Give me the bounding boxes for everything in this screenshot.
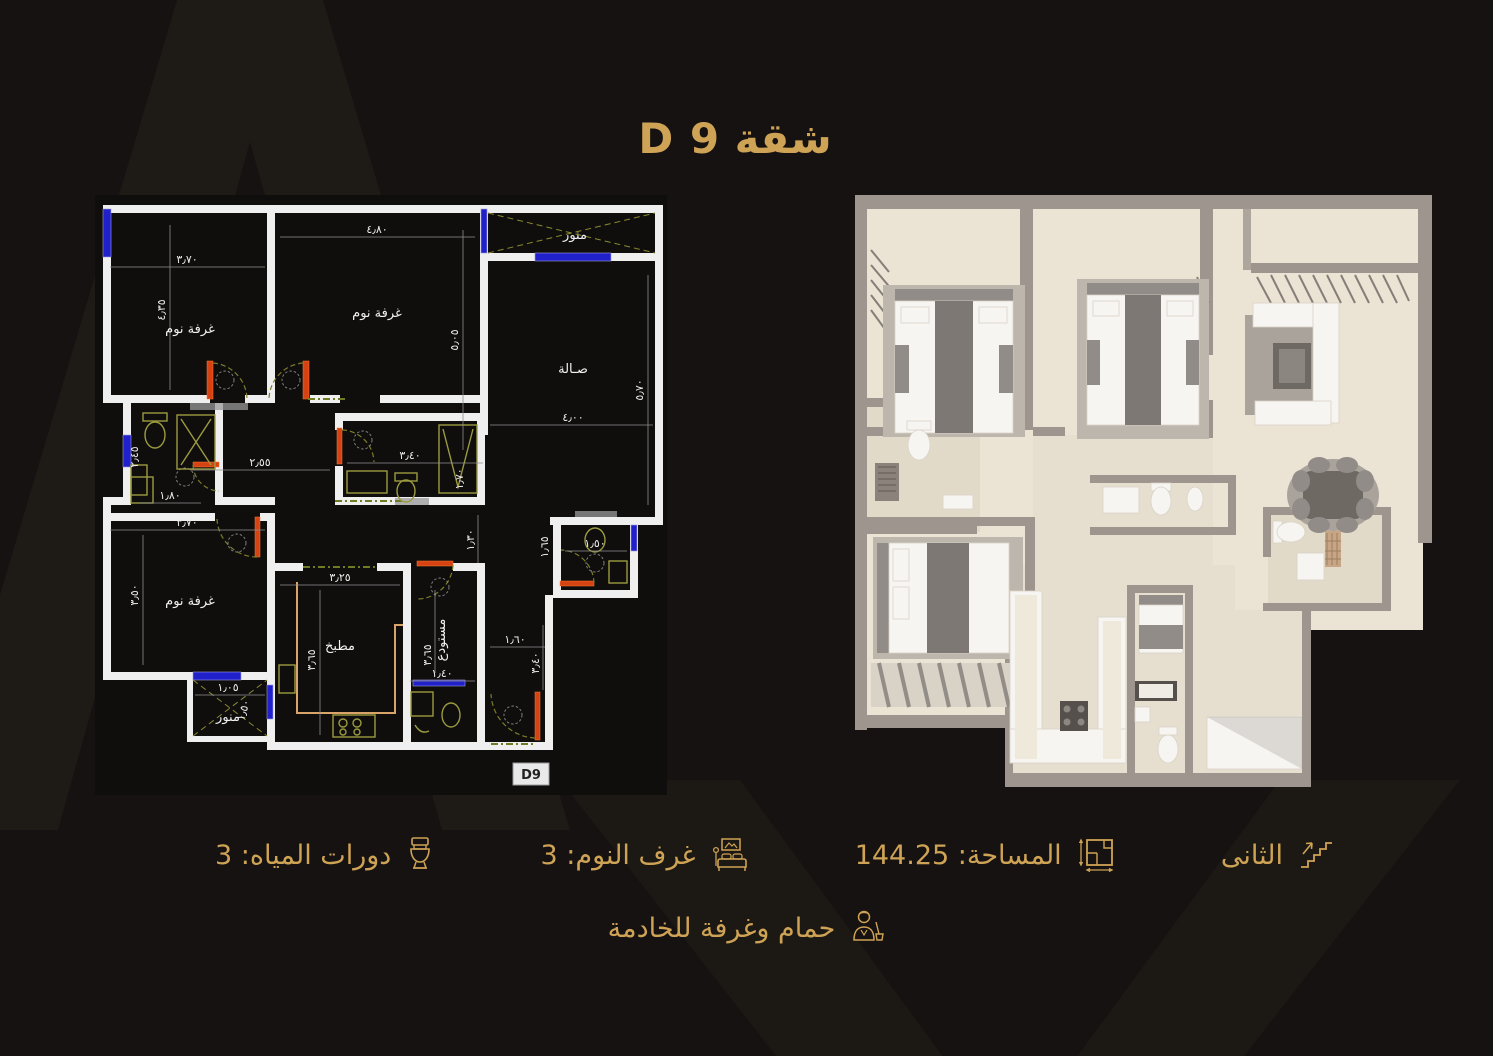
svg-text:٣٫٤٠: ٣٫٤٠ [529, 652, 542, 673]
svg-text:٢٫٥٥: ٢٫٥٥ [249, 456, 270, 469]
svg-text:٣٫٧٠: ٣٫٧٠ [176, 516, 197, 529]
svg-text:٣٫٥٠: ٣٫٥٠ [128, 584, 141, 605]
vanity [1103, 487, 1139, 513]
info-maid: حمام وغرفة للخادمة [608, 908, 886, 948]
maid-label: حمام وغرفة للخادمة [608, 913, 836, 944]
brochure-page: شقة D 9 [0, 0, 1493, 1056]
maid-icon [849, 908, 885, 948]
bed-icon [710, 837, 750, 873]
svg-text:منور: منور [215, 710, 240, 725]
svg-text:مطبخ: مطبخ [325, 639, 355, 654]
floor-label: الثانى [1221, 840, 1283, 871]
svg-text:١٫٥٠: ١٫٥٠ [584, 537, 605, 550]
svg-text:مستودع: مستودع [434, 619, 449, 662]
sink [1135, 707, 1150, 722]
striped-rug [871, 663, 1023, 707]
svg-text:غرفة نوم: غرفة نوم [165, 322, 215, 337]
unit-badge: D9 [513, 763, 549, 785]
bed-bottom-left [871, 537, 1023, 707]
toilet [1158, 735, 1178, 763]
shutter-door [875, 463, 899, 501]
info-bedrooms: غرف النوم: 3 [541, 837, 750, 873]
svg-text:٢٫٤٥: ٢٫٤٥ [128, 446, 141, 467]
svg-text:١٫٤٠: ١٫٤٠ [431, 667, 452, 680]
bedrooms-label: غرف النوم: 3 [541, 840, 696, 871]
svg-text:١٫٦٥: ١٫٦٥ [538, 536, 551, 557]
svg-text:١٫٨٠: ١٫٨٠ [159, 489, 180, 502]
svg-text:٣٫٦٥: ٣٫٦٥ [421, 644, 434, 665]
svg-text:٤٫٠٠: ٤٫٠٠ [562, 411, 583, 424]
bed-top-left [883, 285, 1025, 437]
info-row: الثانى المساحة: 144.25 غرف الن [215, 836, 1335, 874]
svg-text:٤٫٨٠: ٤٫٨٠ [366, 223, 387, 236]
toilet [1277, 522, 1305, 542]
svg-text:٣٫٤٠: ٣٫٤٠ [399, 449, 420, 462]
svg-text:٣٫٢٥: ٣٫٢٥ [329, 571, 350, 584]
vanity [943, 495, 973, 509]
floor-plan-2d-drawing: ٣٫٧٠ ٤٫٣٥ ٤٫٨٠ ٥٫٠٥ ٤٫٠٠ ٥٫٧٠ ٢٫٥٥ ٢٫٤٥ … [95, 195, 667, 795]
vanity [1297, 553, 1324, 580]
area-icon [1076, 837, 1116, 873]
info-area: المساحة: 144.25 [855, 837, 1116, 873]
svg-text:٣٫٦٥: ٣٫٦٥ [305, 649, 318, 670]
svg-text:٣٫٧٠: ٣٫٧٠ [176, 253, 197, 266]
info-floor: الثانى [1221, 838, 1335, 872]
svg-text:٤٫٣٥: ٤٫٣٥ [155, 299, 168, 320]
bidet [1187, 487, 1203, 511]
svg-text:٥٫٧٠: ٥٫٧٠ [633, 379, 646, 400]
svg-text:غرفة نوم: غرفة نوم [352, 306, 402, 321]
stove [1060, 701, 1088, 731]
toilet [1151, 487, 1171, 515]
maid-bed-headboard [1139, 595, 1183, 605]
svg-text:D9: D9 [521, 768, 541, 783]
living-room [1245, 303, 1339, 425]
toilet-icon [405, 836, 435, 874]
svg-text:غرفة نوم: غرفة نوم [165, 594, 215, 609]
maid-note-row: حمام وغرفة للخادمة [0, 908, 1493, 948]
svg-text:٥٫٠٥: ٥٫٠٥ [448, 329, 461, 350]
svg-text:صـالة: صـالة [558, 362, 588, 377]
bathrooms-label: دورات المياه: 3 [215, 840, 391, 871]
svg-text:منور: منور [562, 228, 587, 243]
floor-plan-3d [855, 195, 1437, 807]
svg-text:١٫٠٥: ١٫٠٥ [217, 681, 238, 694]
info-bathrooms: دورات المياه: 3 [215, 836, 435, 874]
floor-plan-2d: ٣٫٧٠ ٤٫٣٥ ٤٫٨٠ ٥٫٠٥ ٤٫٠٠ ٥٫٧٠ ٢٫٥٥ ٢٫٤٥ … [95, 195, 667, 795]
page-title: شقة D 9 [0, 114, 1470, 163]
stairs-icon [1297, 838, 1335, 872]
svg-text:١٫٦٠: ١٫٦٠ [504, 633, 525, 646]
svg-text:١٫٣٠: ١٫٣٠ [464, 529, 477, 550]
floor-plan-3d-render [855, 195, 1437, 807]
svg-text:١٫٧٠: ١٫٧٠ [453, 468, 466, 489]
area-label: المساحة: 144.25 [855, 840, 1062, 871]
bed-top-middle [1077, 279, 1209, 439]
toilet [907, 421, 931, 430]
